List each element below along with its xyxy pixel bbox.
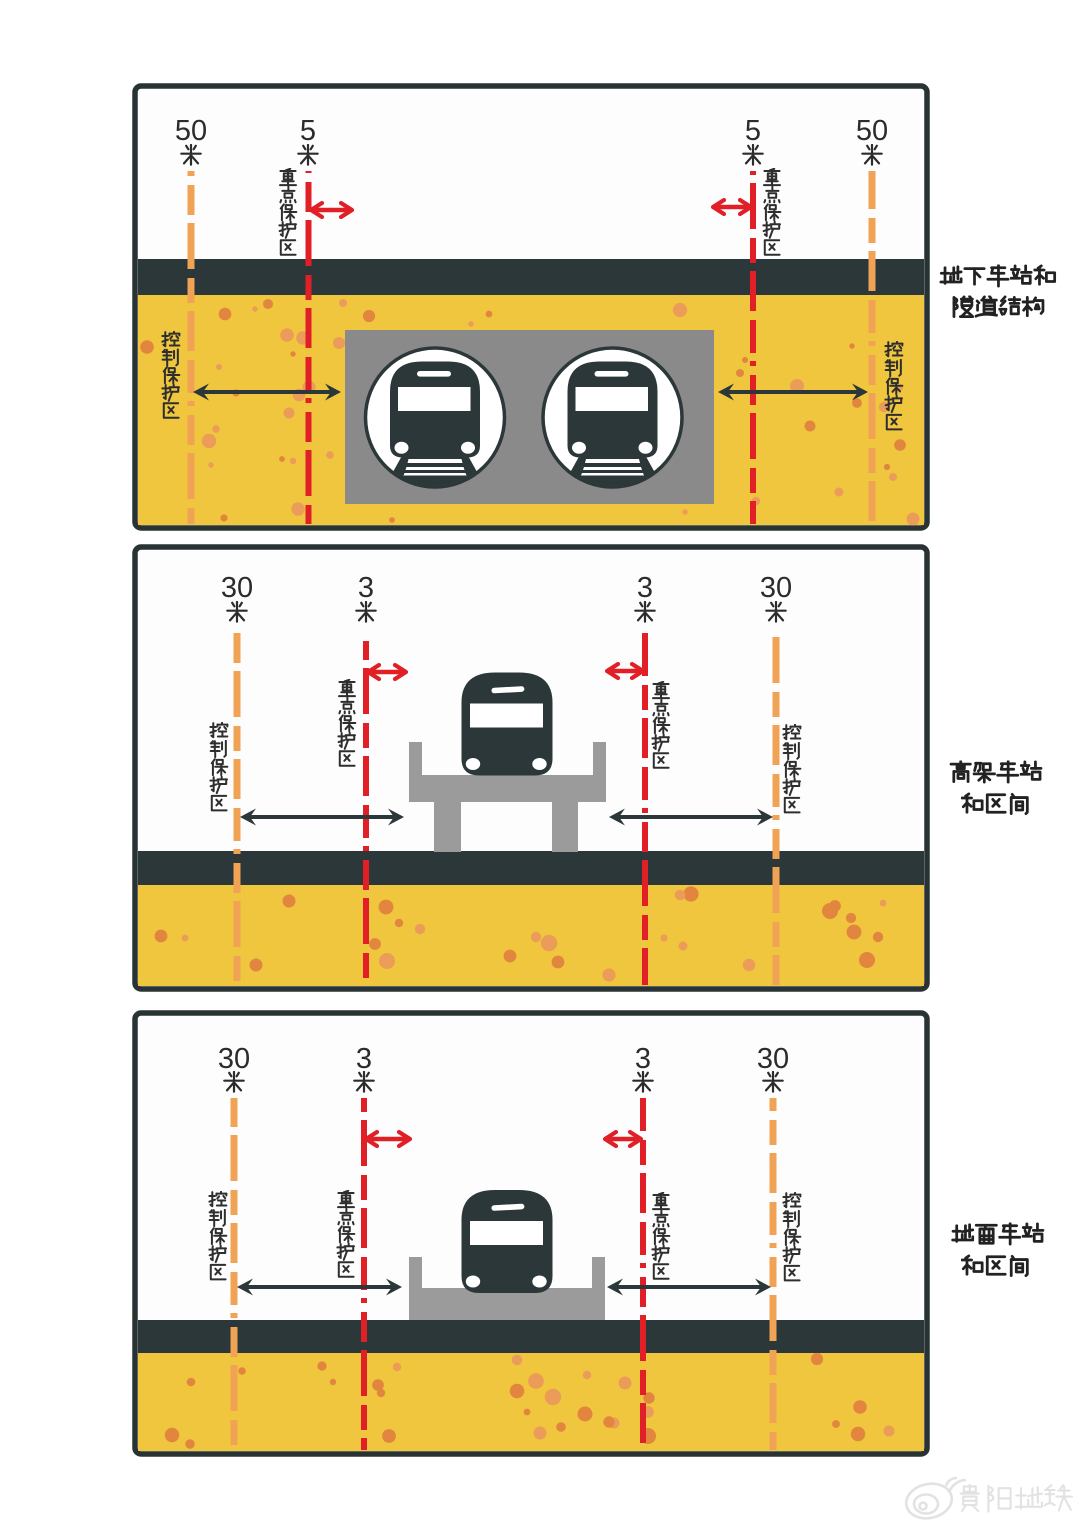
svg-text:3: 3 <box>356 1043 372 1075</box>
svg-text:3: 3 <box>358 572 374 604</box>
svg-text:3: 3 <box>635 1043 651 1075</box>
svg-text:50: 50 <box>175 115 207 147</box>
svg-text:50: 50 <box>856 115 888 147</box>
svg-text:30: 30 <box>221 572 253 604</box>
svg-text:30: 30 <box>760 572 792 604</box>
svg-text:5: 5 <box>300 115 316 147</box>
svg-text:3: 3 <box>637 572 653 604</box>
svg-text:5: 5 <box>745 115 761 147</box>
svg-text:30: 30 <box>218 1043 250 1075</box>
svg-text:30: 30 <box>757 1043 789 1075</box>
